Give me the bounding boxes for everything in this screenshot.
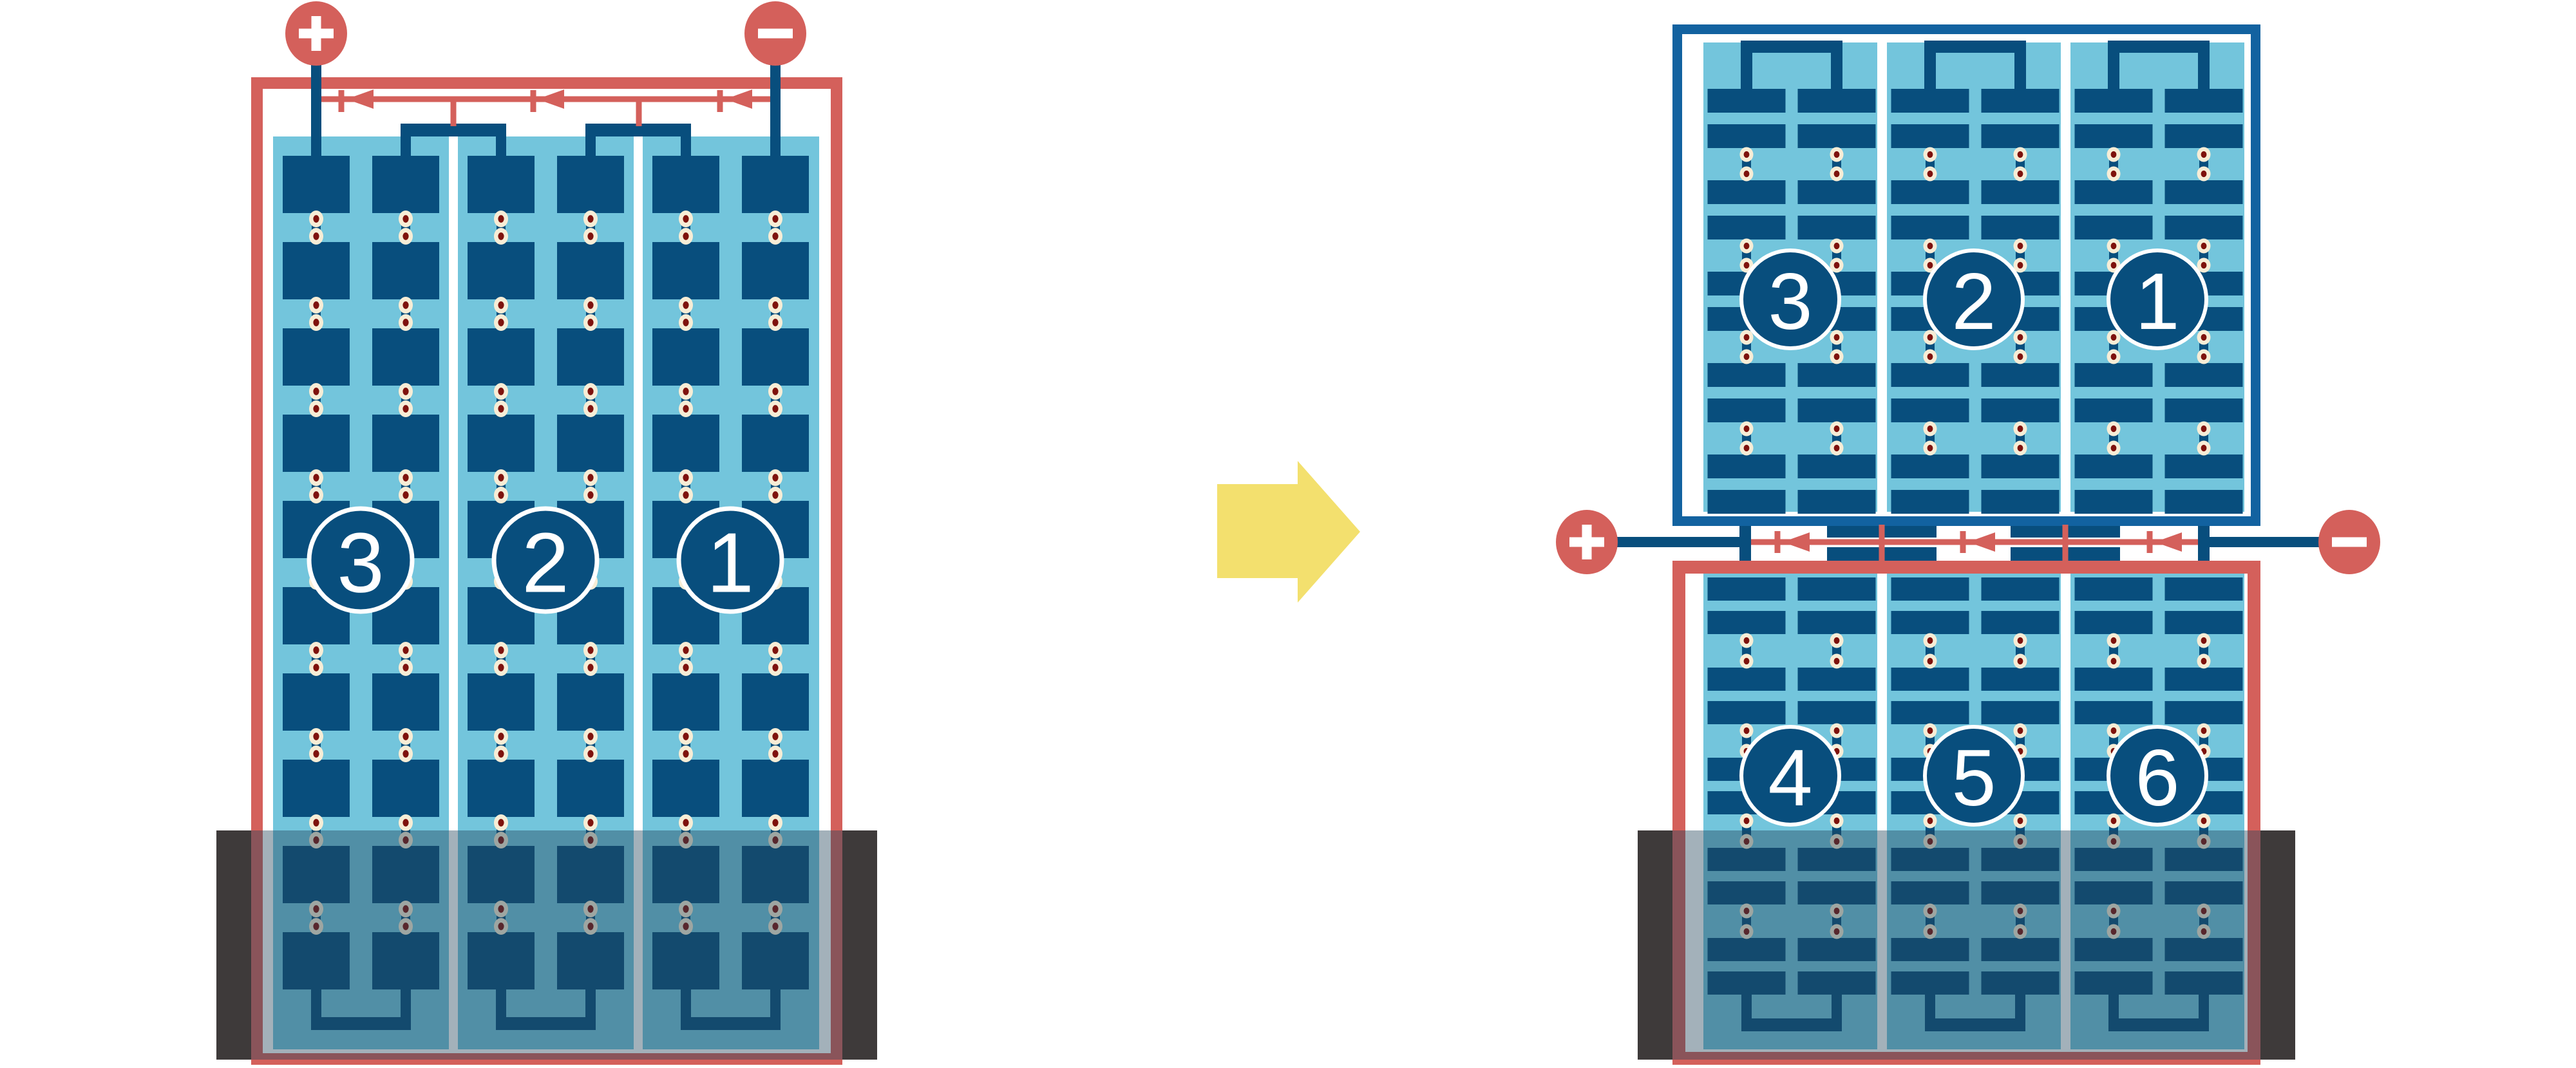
solar-cell — [2165, 611, 2243, 634]
solar-cell — [2165, 577, 2243, 601]
joint-dot-icon — [2111, 353, 2117, 360]
joint-dot-icon — [2018, 353, 2023, 360]
joint-dot-icon — [683, 405, 688, 413]
joint-dot-icon — [2201, 445, 2207, 451]
solar-cell — [2165, 124, 2243, 148]
joint-dot-icon — [2018, 426, 2023, 432]
joint-dot-icon — [2018, 262, 2023, 268]
joint-dot-icon — [498, 733, 504, 740]
diode-tap-wire — [1879, 525, 1885, 561]
string-jumper — [2108, 41, 2210, 53]
joint-dot-icon — [1834, 334, 1840, 341]
string-jumper — [1924, 41, 2026, 53]
substring-badge: 6 — [2108, 727, 2206, 825]
solar-cell — [468, 415, 535, 472]
joint-dot-icon — [402, 232, 408, 240]
solar-cell — [1891, 124, 1969, 148]
solar-cell — [2075, 124, 2153, 148]
solar-cell — [2075, 216, 2153, 239]
solar-cell — [1891, 454, 1969, 478]
solar-cell — [557, 328, 624, 386]
joint-dot-icon — [313, 750, 319, 758]
solar-cell — [1708, 611, 1786, 634]
solar-cell — [1798, 216, 1876, 239]
solar-cell — [742, 673, 809, 731]
joint-dot-icon — [1744, 262, 1750, 268]
joint-dot-icon — [2018, 334, 2023, 341]
bypass-diode-icon — [1968, 532, 1995, 552]
solar-cell — [557, 156, 624, 213]
joint-dot-icon — [498, 646, 504, 654]
joint-dot-icon — [1927, 727, 1933, 734]
joint-dot-icon — [2201, 262, 2207, 268]
joint-dot-icon — [1834, 262, 1840, 268]
joint-dot-icon — [313, 232, 319, 240]
negative-terminal — [744, 1, 806, 66]
joint-dot-icon — [1744, 334, 1750, 341]
substring-label: 3 — [337, 516, 384, 610]
bypass-diode-icon — [1783, 532, 1810, 552]
joint-dot-icon — [1927, 243, 1933, 249]
solar-cell — [2075, 454, 2153, 478]
joint-dot-icon — [498, 405, 504, 413]
solar-cell — [1982, 216, 2060, 239]
joint-dot-icon — [772, 750, 778, 758]
terminal-lead — [2210, 537, 2319, 547]
joint-dot-icon — [313, 301, 319, 309]
solar-cell — [468, 760, 535, 817]
solar-cell — [1798, 124, 1876, 148]
joint-dot-icon — [683, 750, 688, 758]
string-jumper — [1741, 53, 1752, 90]
joint-dot-icon — [402, 319, 408, 326]
joint-dot-icon — [1834, 818, 1840, 824]
solar-cell — [2165, 490, 2243, 514]
solar-cell — [1708, 124, 1786, 148]
substring-label: 1 — [706, 516, 753, 610]
substring-badge: 3 — [309, 509, 412, 612]
joint-dot-icon — [313, 733, 319, 740]
solar-cell — [2075, 490, 2153, 514]
joint-dot-icon — [402, 646, 408, 654]
joint-dot-icon — [2201, 658, 2207, 664]
joint-dot-icon — [313, 819, 319, 827]
solar-cell — [1982, 490, 2060, 514]
solar-cell — [2165, 398, 2243, 422]
joint-dot-icon — [772, 474, 778, 482]
solar-cell — [372, 760, 439, 817]
joint-dot-icon — [313, 388, 319, 395]
joint-dot-icon — [2111, 426, 2117, 432]
solar-cell — [1891, 490, 1969, 514]
solar-cell — [1798, 490, 1876, 514]
joint-dot-icon — [2201, 171, 2207, 177]
solar-cell — [1891, 216, 1969, 239]
solar-cell — [742, 760, 809, 817]
solar-cell — [2165, 363, 2243, 387]
substring-label: 2 — [1952, 258, 1996, 346]
solar-cell — [2075, 180, 2153, 204]
solar-cell — [283, 760, 350, 817]
joint-dot-icon — [2018, 727, 2023, 734]
solar-cell — [652, 328, 719, 386]
solar-cell — [1891, 89, 1969, 113]
plus-icon — [312, 16, 321, 51]
solar-cell — [742, 156, 809, 213]
joint-dot-icon — [683, 474, 688, 482]
joint-dot-icon — [587, 301, 593, 309]
joint-dot-icon — [498, 664, 504, 671]
solar-cell — [372, 415, 439, 472]
solar-cell — [1891, 577, 1969, 601]
shade-bar — [216, 830, 251, 1060]
solar-cell — [1891, 668, 1969, 691]
joint-dot-icon — [402, 491, 408, 499]
string-jumper — [681, 136, 691, 160]
joint-dot-icon — [402, 664, 408, 671]
joint-dot-icon — [2111, 658, 2117, 664]
shade-overlay — [1672, 830, 2260, 1060]
solar-cell — [557, 760, 624, 817]
terminal-lead — [1616, 537, 1739, 547]
joint-dot-icon — [587, 819, 593, 827]
joint-dot-icon — [2018, 637, 2023, 644]
substring-label: 6 — [2136, 734, 2180, 823]
joint-dot-icon — [587, 388, 593, 395]
solar-cell — [2165, 216, 2243, 239]
joint-dot-icon — [313, 664, 319, 671]
substring-badge: 1 — [679, 509, 782, 612]
solar-cell — [1708, 577, 1786, 601]
transition-arrow-icon — [1217, 461, 1360, 603]
solar-cell — [1798, 668, 1876, 691]
joint-dot-icon — [587, 664, 593, 671]
solar-cell — [1708, 454, 1786, 478]
string-jumper — [2108, 53, 2119, 90]
joint-dot-icon — [683, 232, 688, 240]
solar-cell — [372, 328, 439, 386]
solar-module-diagram: 321321456 — [0, 0, 2576, 1068]
joint-dot-icon — [683, 388, 688, 395]
shade-bar — [1638, 830, 1672, 1060]
terminal-lead — [311, 62, 321, 160]
joint-dot-icon — [772, 646, 778, 654]
joint-dot-icon — [587, 733, 593, 740]
diode-junction-tick — [531, 90, 536, 112]
joint-dot-icon — [683, 491, 688, 499]
joint-dot-icon — [1834, 727, 1840, 734]
solar-cell — [2165, 89, 2243, 113]
shade-bar — [2260, 830, 2295, 1060]
solar-cell — [2075, 363, 2153, 387]
solar-cell — [468, 673, 535, 731]
solar-cell — [2075, 668, 2153, 691]
solar-cell — [283, 328, 350, 386]
joint-dot-icon — [2201, 426, 2207, 432]
joint-dot-icon — [1927, 818, 1933, 824]
diode-tap-wire — [636, 99, 642, 126]
string-jumper — [401, 136, 411, 160]
string-jumper — [1831, 53, 1842, 90]
joint-dot-icon — [1744, 243, 1750, 249]
substring-badge: 5 — [1925, 727, 2023, 825]
shade-bar — [842, 830, 877, 1060]
joint-dot-icon — [1744, 426, 1750, 432]
bypass-diode-icon — [2155, 532, 2182, 552]
joint-dot-icon — [587, 232, 593, 240]
diode-tap-wire — [451, 99, 457, 126]
joint-dot-icon — [2111, 171, 2117, 177]
joint-dot-icon — [587, 215, 593, 223]
joint-dot-icon — [498, 750, 504, 758]
joint-dot-icon — [402, 733, 408, 740]
string-jumper — [496, 136, 506, 160]
solar-cell — [283, 242, 350, 299]
solar-cell — [1708, 398, 1786, 422]
solar-cell — [2075, 611, 2153, 634]
substring-badge: 4 — [1741, 727, 1839, 825]
joint-dot-icon — [498, 388, 504, 395]
joint-dot-icon — [1927, 658, 1933, 664]
joint-dot-icon — [402, 215, 408, 223]
solar-cell — [1982, 398, 2060, 422]
joint-dot-icon — [1927, 151, 1933, 158]
substring-label: 4 — [1768, 734, 1813, 823]
joint-dot-icon — [2111, 637, 2117, 644]
joint-dot-icon — [498, 319, 504, 326]
joint-dot-icon — [313, 491, 319, 499]
junction-stub — [2198, 526, 2210, 561]
solar-cell — [372, 673, 439, 731]
joint-dot-icon — [2201, 243, 2207, 249]
solar-cell — [1982, 611, 2060, 634]
joint-dot-icon — [402, 474, 408, 482]
solar-cell — [1982, 89, 2060, 113]
solar-cell — [1798, 577, 1876, 601]
string-jumper — [585, 136, 596, 160]
joint-dot-icon — [683, 319, 688, 326]
solar-cell — [1708, 701, 1786, 724]
joint-dot-icon — [2111, 727, 2117, 734]
joint-dot-icon — [1744, 727, 1750, 734]
minus-icon — [758, 29, 793, 39]
joint-dot-icon — [772, 491, 778, 499]
solar-cell — [1798, 701, 1876, 724]
minus-icon — [2332, 538, 2367, 547]
joint-dot-icon — [587, 319, 593, 326]
solar-cell — [1982, 577, 2060, 601]
joint-dot-icon — [1927, 637, 1933, 644]
joint-dot-icon — [1744, 353, 1750, 360]
solar-cell — [1708, 668, 1786, 691]
joint-dot-icon — [313, 474, 319, 482]
joint-dot-icon — [2201, 818, 2207, 824]
joint-dot-icon — [772, 388, 778, 395]
solar-cell — [1708, 89, 1786, 113]
string-jumper — [1924, 53, 1936, 90]
joint-dot-icon — [2201, 637, 2207, 644]
joint-dot-icon — [313, 215, 319, 223]
joint-dot-icon — [498, 301, 504, 309]
solar-cell — [652, 242, 719, 299]
joint-dot-icon — [1744, 151, 1750, 158]
right-module: 321456 — [1556, 30, 2380, 1060]
substring-badge: 3 — [1741, 250, 1839, 348]
joint-dot-icon — [498, 215, 504, 223]
joint-dot-icon — [1834, 426, 1840, 432]
solar-cell — [1708, 363, 1786, 387]
plus-icon — [1582, 525, 1592, 559]
solar-cell — [283, 673, 350, 731]
substring-label: 5 — [1952, 734, 1996, 823]
joint-dot-icon — [2111, 262, 2117, 268]
joint-dot-icon — [1927, 171, 1933, 177]
joint-dot-icon — [587, 646, 593, 654]
solar-cell — [1982, 668, 2060, 691]
joint-dot-icon — [402, 405, 408, 413]
joint-dot-icon — [683, 301, 688, 309]
positive-terminal — [285, 1, 347, 66]
solar-cell — [1798, 180, 1876, 204]
joint-dot-icon — [587, 750, 593, 758]
joint-dot-icon — [2018, 243, 2023, 249]
joint-dot-icon — [313, 646, 319, 654]
joint-dot-icon — [498, 819, 504, 827]
joint-dot-icon — [772, 301, 778, 309]
solar-cell — [557, 415, 624, 472]
joint-dot-icon — [683, 646, 688, 654]
joint-dot-icon — [1744, 658, 1750, 664]
joint-dot-icon — [1927, 353, 1933, 360]
solar-cell — [1798, 611, 1876, 634]
joint-dot-icon — [2018, 171, 2023, 177]
joint-dot-icon — [772, 319, 778, 326]
joint-dot-icon — [2018, 151, 2023, 158]
joint-dot-icon — [1834, 151, 1840, 158]
diagram-stage: 321321456 — [0, 0, 2576, 1068]
solar-cell — [1798, 398, 1876, 422]
diode-junction-tick — [2147, 531, 2153, 553]
solar-cell — [2165, 701, 2243, 724]
solar-cell — [468, 242, 535, 299]
top-half-panel: 321 — [1678, 30, 2256, 521]
solar-cell — [1982, 701, 2060, 724]
solar-cell — [742, 242, 809, 299]
joint-dot-icon — [402, 388, 408, 395]
joint-dot-icon — [498, 474, 504, 482]
joint-dot-icon — [2201, 353, 2207, 360]
joint-dot-icon — [498, 232, 504, 240]
joint-dot-icon — [772, 664, 778, 671]
joint-dot-icon — [1744, 171, 1750, 177]
diode-tap-wire — [2063, 525, 2069, 561]
joint-dot-icon — [2111, 445, 2117, 451]
solar-cell — [2165, 668, 2243, 691]
diode-junction-tick — [1775, 531, 1781, 553]
solar-cell — [2075, 577, 2153, 601]
solar-cell — [652, 673, 719, 731]
joint-dot-icon — [2201, 334, 2207, 341]
joint-dot-icon — [683, 664, 688, 671]
joint-dot-icon — [772, 215, 778, 223]
solar-cell — [1982, 124, 2060, 148]
solar-cell — [372, 156, 439, 213]
joint-dot-icon — [313, 405, 319, 413]
solar-cell — [1982, 454, 2060, 478]
joint-dot-icon — [1927, 262, 1933, 268]
joint-dot-icon — [772, 405, 778, 413]
joint-dot-icon — [2018, 818, 2023, 824]
joint-dot-icon — [1834, 243, 1840, 249]
solar-cell — [1891, 363, 1969, 387]
joint-dot-icon — [2111, 334, 2117, 341]
solar-cell — [1708, 216, 1786, 239]
joint-dot-icon — [2111, 818, 2117, 824]
solar-cell — [1982, 180, 2060, 204]
solar-cell — [1708, 180, 1786, 204]
joint-dot-icon — [772, 232, 778, 240]
joint-dot-icon — [587, 405, 593, 413]
joint-dot-icon — [313, 319, 319, 326]
solar-cell — [742, 415, 809, 472]
positive-terminal — [1556, 510, 1618, 574]
joint-dot-icon — [683, 215, 688, 223]
joint-dot-icon — [1927, 445, 1933, 451]
joint-dot-icon — [772, 819, 778, 827]
joint-dot-icon — [1834, 353, 1840, 360]
solar-cell — [2075, 398, 2153, 422]
substring-label: 2 — [522, 516, 569, 610]
string-jumper — [2198, 53, 2210, 90]
solar-cell — [652, 415, 719, 472]
substring-label: 3 — [1768, 258, 1813, 346]
solar-cell — [1891, 398, 1969, 422]
solar-cell — [1891, 180, 1969, 204]
joint-dot-icon — [587, 491, 593, 499]
joint-dot-icon — [2201, 727, 2207, 734]
solar-cell — [1891, 701, 1969, 724]
solar-cell — [2075, 701, 2153, 724]
joint-dot-icon — [498, 491, 504, 499]
solar-cell — [283, 415, 350, 472]
joint-dot-icon — [683, 819, 688, 827]
joint-dot-icon — [1744, 637, 1750, 644]
string-jumper — [2014, 53, 2026, 90]
joint-dot-icon — [1744, 445, 1750, 451]
joint-dot-icon — [1834, 445, 1840, 451]
solar-cell — [1891, 611, 1969, 634]
solar-cell — [372, 242, 439, 299]
joint-dot-icon — [2018, 658, 2023, 664]
shade-overlay — [251, 830, 842, 1060]
solar-cell — [652, 156, 719, 213]
joint-dot-icon — [772, 733, 778, 740]
solar-cell — [557, 242, 624, 299]
substring-label: 1 — [2136, 258, 2180, 346]
solar-cell — [1708, 490, 1786, 514]
joint-dot-icon — [1744, 818, 1750, 824]
substring-badge: 2 — [494, 509, 597, 612]
joint-dot-icon — [2018, 445, 2023, 451]
joint-dot-icon — [2111, 243, 2117, 249]
joint-dot-icon — [587, 474, 593, 482]
joint-dot-icon — [1834, 171, 1840, 177]
joint-dot-icon — [1834, 658, 1840, 664]
joint-dot-icon — [683, 733, 688, 740]
joint-dot-icon — [1927, 426, 1933, 432]
joint-dot-icon — [2111, 151, 2117, 158]
solar-cell — [1798, 454, 1876, 478]
